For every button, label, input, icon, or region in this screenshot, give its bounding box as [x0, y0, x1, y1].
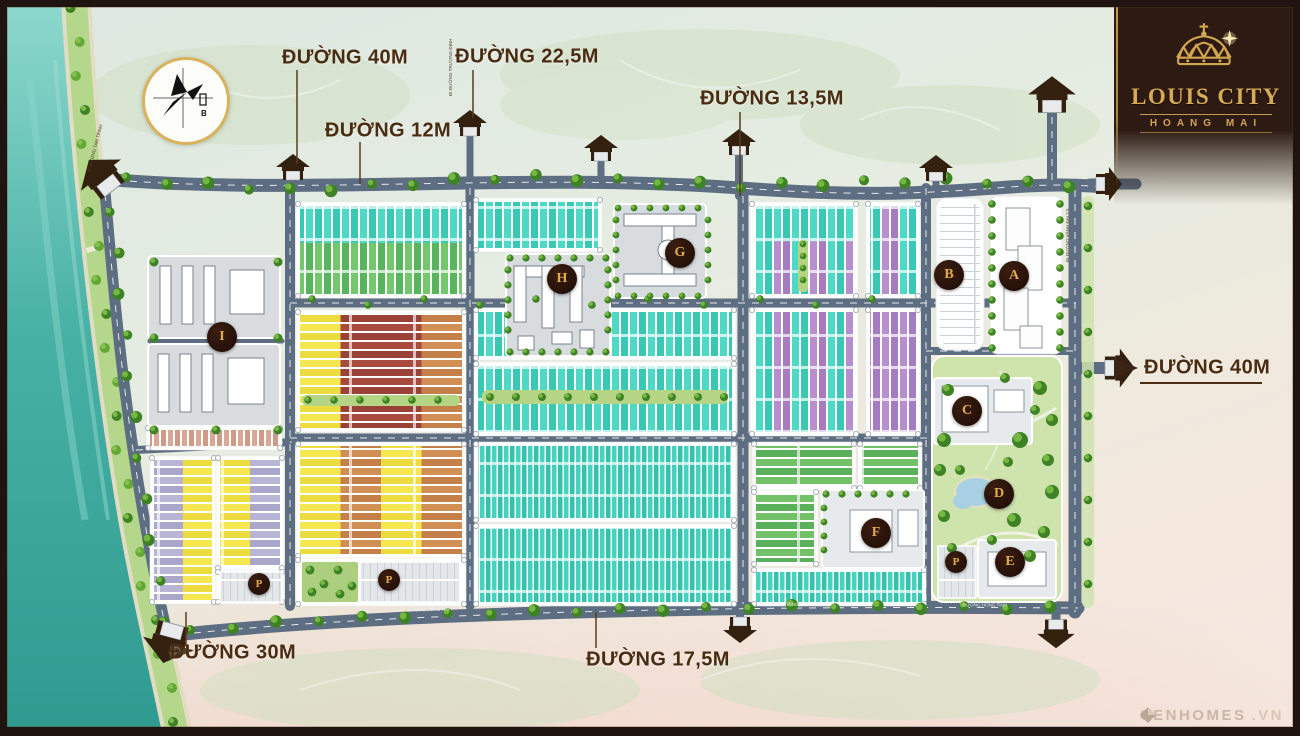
tree-icon — [364, 301, 372, 309]
tree-icon — [486, 393, 494, 401]
tree-icon — [202, 176, 215, 189]
zone-marker-c: C — [952, 396, 982, 426]
lot-count-bubble — [149, 455, 154, 460]
lot-block — [751, 441, 856, 490]
lot-count-bubble — [731, 307, 736, 312]
tree-icon — [512, 393, 520, 401]
tree-icon — [1084, 202, 1093, 211]
tree-icon — [325, 184, 338, 197]
tree-icon — [756, 295, 764, 303]
tree-icon — [504, 326, 511, 333]
tree-icon — [705, 232, 712, 239]
lot-block — [295, 441, 466, 558]
tree-icon — [306, 566, 315, 575]
gate-icon — [1037, 620, 1074, 649]
shore-tree-icon — [112, 411, 122, 421]
cenhomes-diamond-icon — [1140, 707, 1156, 723]
tree-icon — [504, 296, 511, 303]
tree-icon — [938, 510, 950, 522]
tree-icon — [668, 393, 676, 401]
tree-icon — [1084, 328, 1093, 337]
tree-icon — [821, 547, 828, 554]
gate-icon — [722, 129, 756, 155]
lot-count-bubble — [461, 557, 466, 562]
tree-icon — [1084, 412, 1093, 421]
tree-icon — [602, 254, 609, 261]
tree-icon — [112, 288, 124, 300]
tree-icon — [314, 616, 324, 626]
tree-icon — [616, 393, 624, 401]
tree-icon — [150, 334, 159, 343]
lot-count-bubble — [749, 201, 754, 206]
lot-count-bubble — [851, 441, 856, 446]
tree-icon — [399, 612, 411, 624]
tree-icon — [614, 603, 625, 614]
shore-tree-icon — [66, 3, 76, 13]
lot-count-bubble — [865, 201, 870, 206]
shore-tree-icon — [80, 105, 90, 115]
tree-icon — [420, 295, 428, 303]
tree-icon — [1084, 286, 1093, 295]
project-title: LOUIS CITY — [1114, 84, 1298, 110]
tree-icon — [988, 344, 996, 352]
lot-count-bubble — [277, 445, 282, 450]
tree-icon — [1022, 176, 1033, 187]
tree-icon — [613, 232, 620, 239]
lot-count-bubble — [751, 567, 756, 572]
street-name: ĐI ĐƯỜNG VÀNH ĐAI 2.5 — [1064, 208, 1070, 262]
tree-icon — [604, 311, 611, 318]
tree-icon — [334, 566, 343, 575]
lot-count-bubble — [749, 293, 754, 298]
tree-icon — [642, 393, 650, 401]
tree-icon — [1084, 538, 1093, 547]
road-label-duong-30m: ĐƯỜNG 30M — [170, 642, 296, 665]
lot-count-bubble — [853, 293, 858, 298]
tree-icon — [886, 490, 893, 497]
tree-icon — [121, 371, 132, 382]
tree-icon — [1003, 457, 1013, 467]
lot-count-bubble — [461, 309, 466, 314]
lot-count-bubble — [751, 561, 756, 566]
tree-icon — [604, 296, 611, 303]
tree-icon — [1084, 370, 1093, 379]
lot-count-bubble — [473, 517, 478, 522]
project-subtitle: HOANG MAI — [1140, 114, 1272, 133]
tree-icon — [1012, 432, 1028, 448]
tree-icon — [631, 205, 638, 212]
tree-icon — [800, 265, 807, 272]
lot-block — [751, 567, 926, 606]
tree-icon — [274, 334, 283, 343]
tree-icon — [356, 611, 367, 622]
shore-tree-icon — [84, 207, 94, 217]
lot-block — [215, 455, 284, 570]
tree-icon — [304, 396, 312, 404]
lot-count-bubble — [215, 455, 220, 460]
lot-count-bubble — [279, 455, 284, 460]
tree-icon — [830, 603, 840, 613]
lot-count-bubble — [295, 557, 300, 562]
zone-marker-g: G — [665, 238, 695, 268]
tree-icon — [1033, 381, 1047, 395]
lot-count-bubble — [597, 247, 602, 252]
lot-count-bubble — [853, 201, 858, 206]
tree-icon — [1056, 280, 1064, 288]
shore-tree-icon — [75, 37, 85, 47]
tree-icon — [872, 600, 883, 611]
tree-icon — [330, 396, 338, 404]
tree-icon — [613, 247, 620, 254]
tree-icon — [506, 254, 513, 261]
lot-count-bubble — [857, 441, 862, 446]
tree-icon — [1084, 244, 1093, 253]
watermark-domain: .VN — [1251, 707, 1284, 724]
shore-tree-icon — [123, 513, 133, 523]
tree-icon — [705, 262, 712, 269]
tree-icon — [663, 293, 670, 300]
lot-count-bubble — [473, 197, 478, 202]
shore-tree-icon — [168, 717, 178, 727]
shore-tree-icon — [167, 683, 177, 693]
tree-icon — [244, 185, 254, 195]
tree-icon — [308, 588, 317, 597]
zone-marker-a: A — [999, 261, 1029, 291]
tree-icon — [123, 330, 133, 340]
lot-count-bubble — [813, 561, 818, 566]
lot-count-bubble — [731, 441, 736, 446]
compass-icon: B — [145, 60, 221, 136]
zone-marker-e: E — [995, 547, 1025, 577]
tree-icon — [538, 254, 545, 261]
tree-icon — [915, 603, 927, 615]
tree-icon — [141, 494, 152, 505]
tree-icon — [613, 277, 620, 284]
tree-icon — [821, 505, 828, 512]
crown-icon — [1168, 19, 1244, 77]
shore-tree-icon — [135, 547, 145, 557]
tree-icon — [156, 576, 166, 586]
tree-icon — [274, 258, 283, 267]
tree-icon — [143, 534, 155, 546]
tree-icon — [812, 301, 820, 309]
watermark: CENHOMES.VN — [1140, 707, 1284, 724]
road-label-duong-12m: ĐƯỜNG 12M — [325, 120, 451, 143]
tree-icon — [308, 295, 316, 303]
tree-icon — [604, 281, 611, 288]
compass-rose: B — [142, 57, 230, 145]
tree-icon — [1056, 328, 1064, 336]
lot-count-bubble — [731, 361, 736, 366]
zone-marker-p1: P — [248, 573, 270, 595]
lot-count-bubble — [853, 307, 858, 312]
zone-marker-f: F — [861, 518, 891, 548]
tree-icon — [270, 615, 282, 627]
shore-tree-icon — [101, 309, 111, 319]
tree-icon — [899, 177, 910, 188]
sparkle-icon — [1221, 30, 1238, 47]
tree-icon — [776, 177, 787, 188]
lot-count-bubble — [461, 201, 466, 206]
tree-icon — [530, 169, 541, 180]
tree-icon — [657, 605, 669, 617]
street-name: ĐƯỜNG HỒNG TÍNH — [766, 601, 810, 607]
shore-tree-icon — [76, 139, 86, 149]
tree-icon — [988, 328, 996, 336]
lot-count-bubble — [473, 441, 478, 446]
shore-tree-icon — [136, 581, 146, 591]
lot-count-bubble — [915, 307, 920, 312]
tree-icon — [490, 175, 500, 185]
tree-icon — [705, 247, 712, 254]
tree-icon — [604, 326, 611, 333]
tree-icon — [284, 183, 295, 194]
tree-icon — [320, 580, 329, 589]
tree-icon — [1056, 264, 1064, 272]
road-label-duong-17-5m: ĐƯỜNG 17,5M — [586, 649, 730, 672]
zone-marker-d: D — [984, 479, 1014, 509]
tree-icon — [1024, 550, 1036, 562]
tree-icon — [700, 301, 708, 309]
tree-icon — [504, 281, 511, 288]
tree-icon — [988, 248, 996, 256]
lot-count-bubble — [461, 601, 466, 606]
lot-count-bubble — [295, 441, 300, 446]
tree-icon — [522, 348, 529, 355]
tree-icon — [588, 301, 596, 309]
tree-icon — [132, 453, 142, 463]
tree-icon — [367, 179, 377, 189]
lot-count-bubble — [731, 523, 736, 528]
zone-marker-i: I — [207, 322, 237, 352]
tree-icon — [694, 393, 702, 401]
tree-icon — [988, 216, 996, 224]
lot-count-bubble — [749, 431, 754, 436]
road-label-duong-22-5m: ĐƯỜNG 22,5M — [455, 46, 599, 69]
tree-icon — [522, 254, 529, 261]
tree-icon — [800, 241, 807, 248]
tree-icon — [942, 384, 954, 396]
tree-icon — [590, 393, 598, 401]
tree-icon — [227, 623, 238, 634]
shore-tree-icon — [100, 343, 110, 353]
tree-icon — [838, 490, 845, 497]
lot-count-bubble — [731, 431, 736, 436]
tree-icon — [705, 277, 712, 284]
lot-block — [865, 201, 920, 298]
tree-icon — [1056, 248, 1064, 256]
tree-icon — [504, 311, 511, 318]
tree-icon — [615, 293, 622, 300]
tree-icon — [859, 175, 869, 185]
tree-icon — [937, 433, 951, 447]
gate-icon — [453, 110, 487, 136]
zone-marker-h: H — [547, 264, 577, 294]
lot-count-bubble — [473, 431, 478, 436]
tree-icon — [679, 205, 686, 212]
lot-count-bubble — [853, 431, 858, 436]
tree-icon — [485, 609, 496, 620]
street-name: ĐƯỜNG HỒNG TÍNH — [963, 602, 1007, 608]
tree-icon — [528, 604, 540, 616]
tree-icon — [448, 172, 461, 185]
lot-count-bubble — [295, 309, 300, 314]
lot-count-bubble — [731, 517, 736, 522]
lot-count-bubble — [473, 361, 478, 366]
tree-icon — [538, 348, 545, 355]
shore-tree-icon — [111, 445, 121, 455]
street-name: ĐI ĐƯỜNG TRƯƠNG ĐỊNH — [447, 39, 453, 96]
lot-count-bubble — [917, 441, 922, 446]
lot-count-bubble — [295, 293, 300, 298]
tree-icon — [800, 277, 807, 284]
tree-icon — [653, 179, 664, 190]
lot-count-bubble — [473, 601, 478, 606]
tree-icon — [800, 253, 807, 260]
tree-icon — [570, 254, 577, 261]
tree-icon — [955, 465, 965, 475]
zone-marker-b: B — [934, 260, 964, 290]
lot-count-bubble — [473, 355, 478, 360]
tree-icon — [1042, 454, 1054, 466]
road-label-duong-40m-right: ĐƯỜNG 40M — [1144, 357, 1270, 380]
tree-icon — [1056, 312, 1064, 320]
tree-icon — [736, 183, 746, 193]
tree-icon — [356, 396, 364, 404]
tree-icon — [868, 295, 876, 303]
tree-icon — [532, 295, 540, 303]
tree-icon — [602, 348, 609, 355]
tree-icon — [854, 490, 861, 497]
tree-icon — [586, 348, 593, 355]
tree-icon — [348, 582, 357, 591]
tree-icon — [705, 217, 712, 224]
tree-icon — [604, 266, 611, 273]
tree-icon — [1007, 513, 1021, 527]
lot-count-bubble — [461, 293, 466, 298]
tree-icon — [105, 207, 115, 217]
tree-icon — [506, 348, 513, 355]
tree-icon — [1046, 414, 1058, 426]
lot-count-bubble — [597, 197, 602, 202]
lot-count-bubble — [915, 293, 920, 298]
road-label-duong-13-5m: ĐƯỜNG 13,5M — [700, 88, 844, 111]
lot-count-bubble — [813, 489, 818, 494]
shore-tree-icon — [71, 71, 81, 81]
tree-icon — [988, 200, 996, 208]
shore-tree-icon — [123, 479, 133, 489]
tree-icon — [130, 411, 142, 423]
lot-count-bubble — [915, 431, 920, 436]
tree-icon — [663, 205, 670, 212]
tree-icon — [274, 426, 283, 435]
zone-marker-p3: P — [945, 551, 967, 573]
tree-icon — [212, 426, 221, 435]
lot-count-bubble — [749, 307, 754, 312]
tree-icon — [1056, 344, 1064, 352]
tree-icon — [613, 262, 620, 269]
tree-icon — [631, 293, 638, 300]
tree-icon — [647, 293, 654, 300]
compass-north-label: B — [201, 109, 207, 118]
tree-icon — [1000, 373, 1010, 383]
gate-icon — [723, 617, 757, 643]
shore-tree-icon — [91, 275, 101, 285]
lot-count-bubble — [731, 601, 736, 606]
tree-icon — [1056, 296, 1064, 304]
tree-icon — [554, 254, 561, 261]
tree-icon — [570, 348, 577, 355]
tree-icon — [679, 293, 686, 300]
tree-icon — [1084, 580, 1093, 589]
tree-icon — [1044, 601, 1056, 613]
lot-count-bubble — [865, 307, 870, 312]
tree-icon — [150, 258, 159, 267]
tree-icon — [407, 180, 418, 191]
lot-block — [749, 307, 858, 436]
tree-icon — [982, 179, 992, 189]
lot-count-bubble — [145, 445, 150, 450]
lot-count-bubble — [865, 431, 870, 436]
tree-icon — [1056, 200, 1064, 208]
tree-icon — [987, 535, 997, 545]
tree-icon — [572, 607, 582, 617]
lot-count-bubble — [731, 355, 736, 360]
tree-icon — [586, 254, 593, 261]
tree-icon — [720, 393, 728, 401]
tree-icon — [694, 176, 707, 189]
tree-icon — [1056, 216, 1064, 224]
tree-icon — [161, 178, 172, 189]
tree-icon — [695, 205, 702, 212]
road-label-duong-40m-top: ĐƯỜNG 40M — [282, 47, 408, 70]
tree-icon — [821, 519, 828, 526]
tree-icon — [817, 179, 830, 192]
shore-tree-icon — [94, 241, 104, 251]
tree-icon — [988, 264, 996, 272]
lot-count-bubble — [473, 247, 478, 252]
tree-icon — [1056, 232, 1064, 240]
tree-icon — [870, 490, 877, 497]
lot-block — [473, 441, 736, 522]
tree-icon — [613, 217, 620, 224]
lot-block — [473, 197, 602, 252]
tree-icon — [988, 232, 996, 240]
tree-icon — [821, 533, 828, 540]
lot-block — [751, 489, 818, 566]
tree-icon — [988, 280, 996, 288]
tree-icon — [934, 464, 946, 476]
tree-icon — [150, 426, 159, 435]
lot-block — [295, 201, 466, 298]
tree-icon — [701, 602, 711, 612]
lot-count-bubble — [461, 441, 466, 446]
lot-count-bubble — [751, 441, 756, 446]
tree-icon — [504, 266, 511, 273]
watermark-brand: CENHOMES — [1140, 707, 1247, 724]
tree-icon — [571, 174, 584, 187]
tree-icon — [1084, 496, 1093, 505]
tree-icon — [613, 173, 623, 183]
lot-block — [295, 309, 466, 432]
tree-icon — [1084, 454, 1093, 463]
tree-icon — [902, 490, 909, 497]
lot-count-bubble — [295, 201, 300, 206]
zone-marker-p2: P — [378, 569, 400, 591]
lot-block — [473, 523, 736, 606]
tree-icon — [434, 396, 442, 404]
tree-icon — [988, 312, 996, 320]
